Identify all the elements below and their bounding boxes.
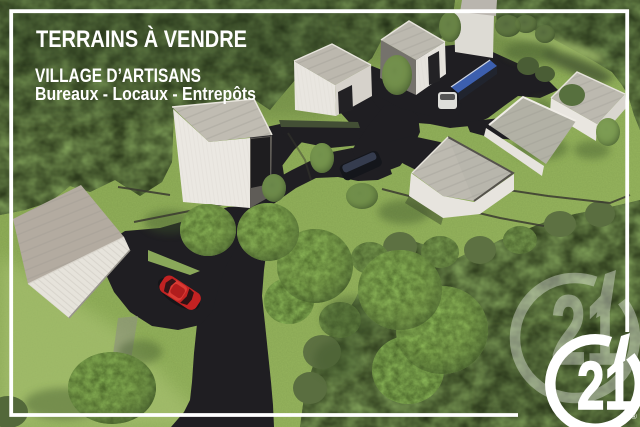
svg-text:Bureaux - Locaux - Entrepôts: Bureaux - Locaux - Entrepôts (35, 83, 256, 104)
svg-text:21: 21 (577, 348, 632, 424)
svg-text:®: ® (631, 412, 637, 421)
svg-text:TERRAINS À VENDRE: TERRAINS À VENDRE (36, 25, 247, 53)
